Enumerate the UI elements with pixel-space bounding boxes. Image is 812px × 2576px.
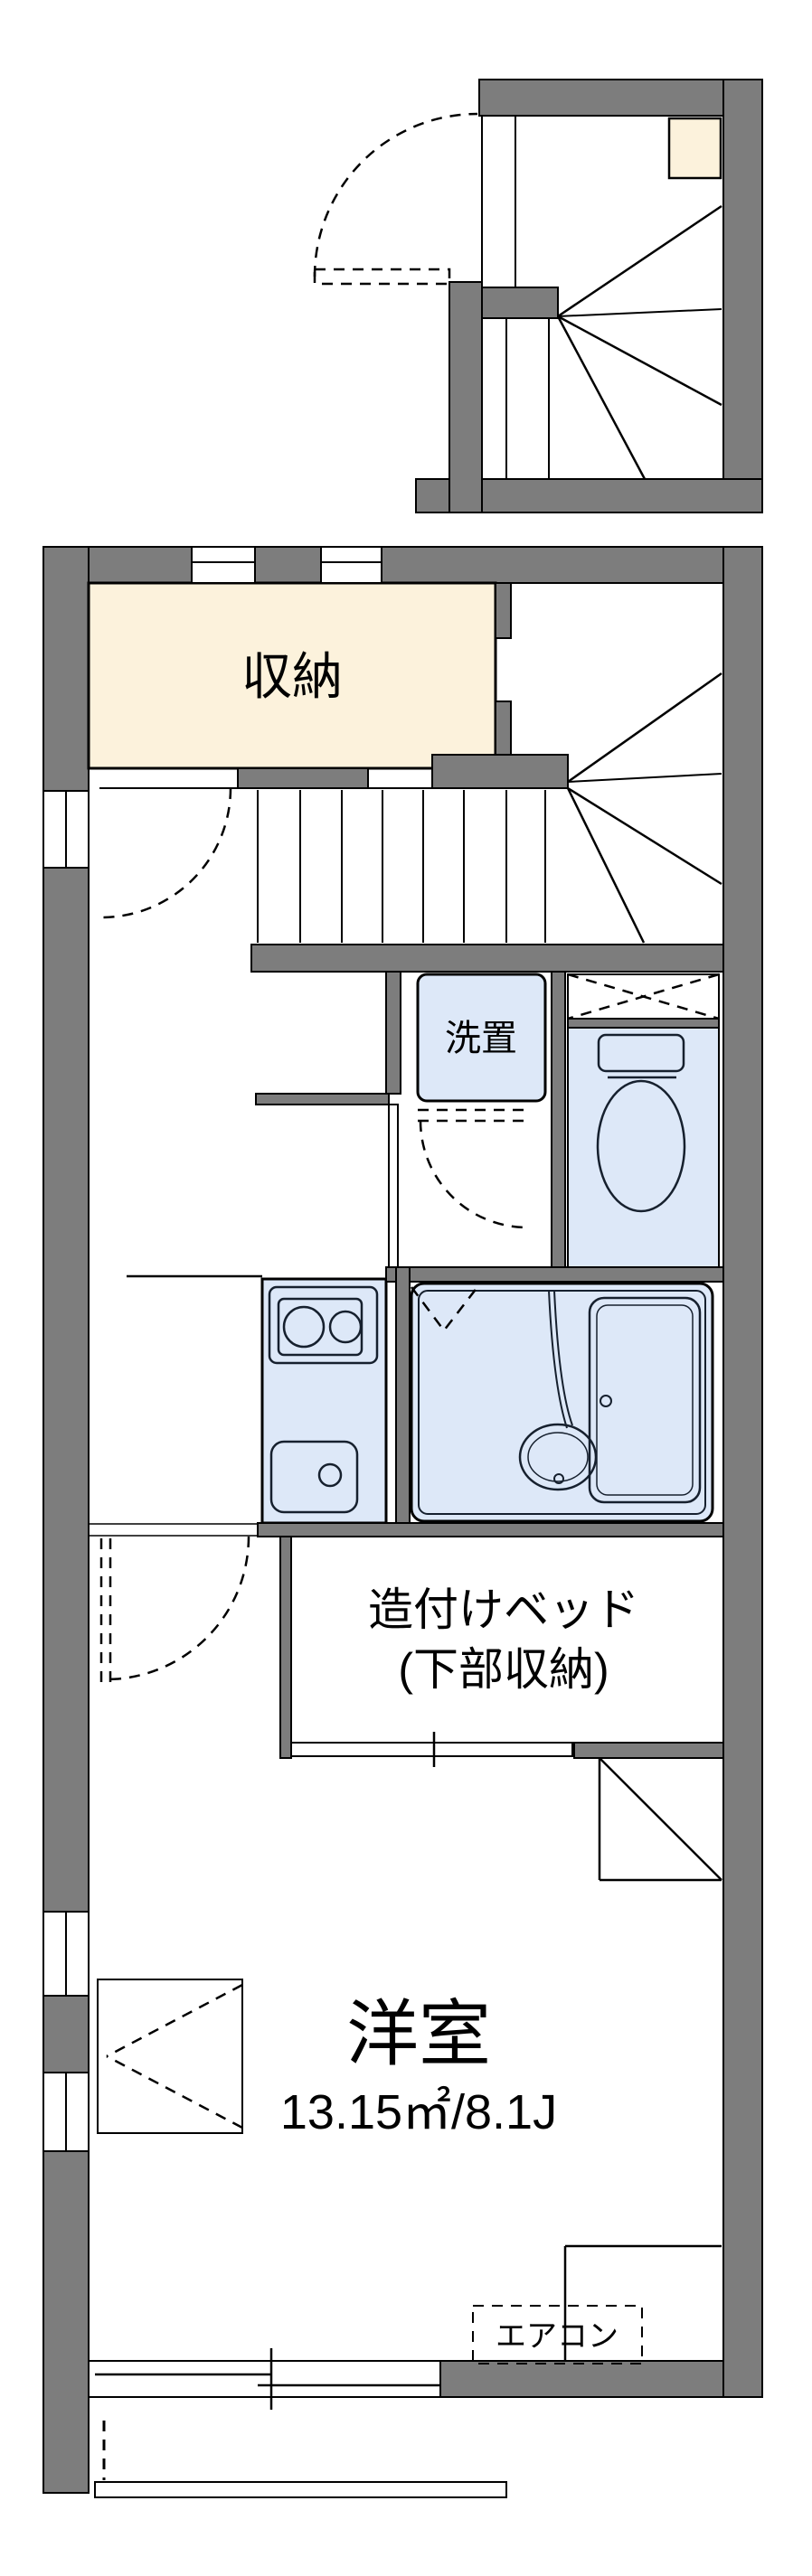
corner-shelf: [600, 1758, 722, 1880]
stair-hub-wall: [432, 755, 568, 788]
wall-top: [382, 547, 762, 583]
wall: [401, 1267, 723, 1282]
aircon-label: エアコン: [496, 2319, 618, 2354]
partition: [552, 972, 565, 1267]
wall-right: [723, 547, 762, 2397]
bath-floor: [411, 1283, 713, 1521]
room-door: [101, 1537, 249, 1683]
wall: [482, 287, 558, 318]
wall: [396, 1267, 410, 1525]
wall-left: [43, 1996, 89, 2073]
partition: [496, 583, 511, 638]
built-in-bed: 造付けベッド (下部収納): [280, 1537, 723, 1767]
wall-bottom: [440, 2361, 723, 2397]
wall: [574, 1743, 723, 1758]
aircon: エアコン: [473, 2306, 642, 2364]
window: [43, 791, 89, 868]
washer-label: 洗置: [445, 1019, 517, 1058]
storage-room: 収納: [89, 583, 496, 768]
wall: [449, 282, 482, 512]
window: [192, 547, 255, 583]
wall-stub: [256, 1094, 389, 1105]
window: [43, 2073, 89, 2151]
storage-label: 収納: [241, 648, 343, 705]
wall: [723, 80, 762, 512]
window: [321, 547, 382, 583]
wall-top: [255, 547, 321, 583]
upper-stair-room: [315, 80, 762, 512]
wall-left: [43, 2151, 89, 2493]
wall-left: [43, 547, 89, 791]
wall: [258, 1523, 723, 1537]
hall-door-arc: [101, 788, 231, 917]
floor-plan-page: 収納: [0, 0, 812, 2576]
porch-strip: [95, 2421, 506, 2497]
wall-left: [43, 868, 89, 1912]
toilet-room: [552, 972, 719, 1267]
western-room: 洋室 13.15㎡/8.1J エアコン: [98, 1979, 722, 2364]
bed-sliding-door: [291, 1743, 572, 1756]
kitchen: [127, 1276, 386, 1523]
wall: [251, 945, 723, 972]
wall: [238, 768, 368, 788]
wall: [568, 1019, 719, 1028]
washroom-door: [418, 1110, 527, 1227]
bed-label-line2: (下部収納): [398, 1644, 609, 1695]
window: [43, 1912, 89, 1996]
room-area-label: 13.15㎡/8.1J: [280, 2085, 557, 2139]
thin-wall: [389, 1105, 398, 1267]
upper-stair-steps: [506, 206, 722, 479]
entry-door-arc: [315, 114, 477, 284]
upper-closet: [669, 118, 721, 178]
wall: [479, 80, 762, 116]
toilet-floor: [568, 1028, 719, 1267]
room-name-label: 洋室: [346, 1994, 491, 2074]
bathroom: [386, 1267, 723, 1525]
washer-space: 洗置: [386, 972, 545, 1101]
wall: [280, 1537, 291, 1758]
partition: [496, 701, 511, 757]
main-floor: 収納: [43, 547, 762, 2497]
kitchen-unit: [262, 1279, 386, 1523]
side-window-box: [98, 1979, 242, 2133]
wall: [386, 972, 401, 1094]
entry-door-opening: [482, 116, 515, 287]
floor-plan-svg: 収納: [0, 0, 812, 2576]
bottom-window: [89, 2348, 440, 2410]
bed-label-line1: 造付けベッド: [368, 1584, 639, 1635]
